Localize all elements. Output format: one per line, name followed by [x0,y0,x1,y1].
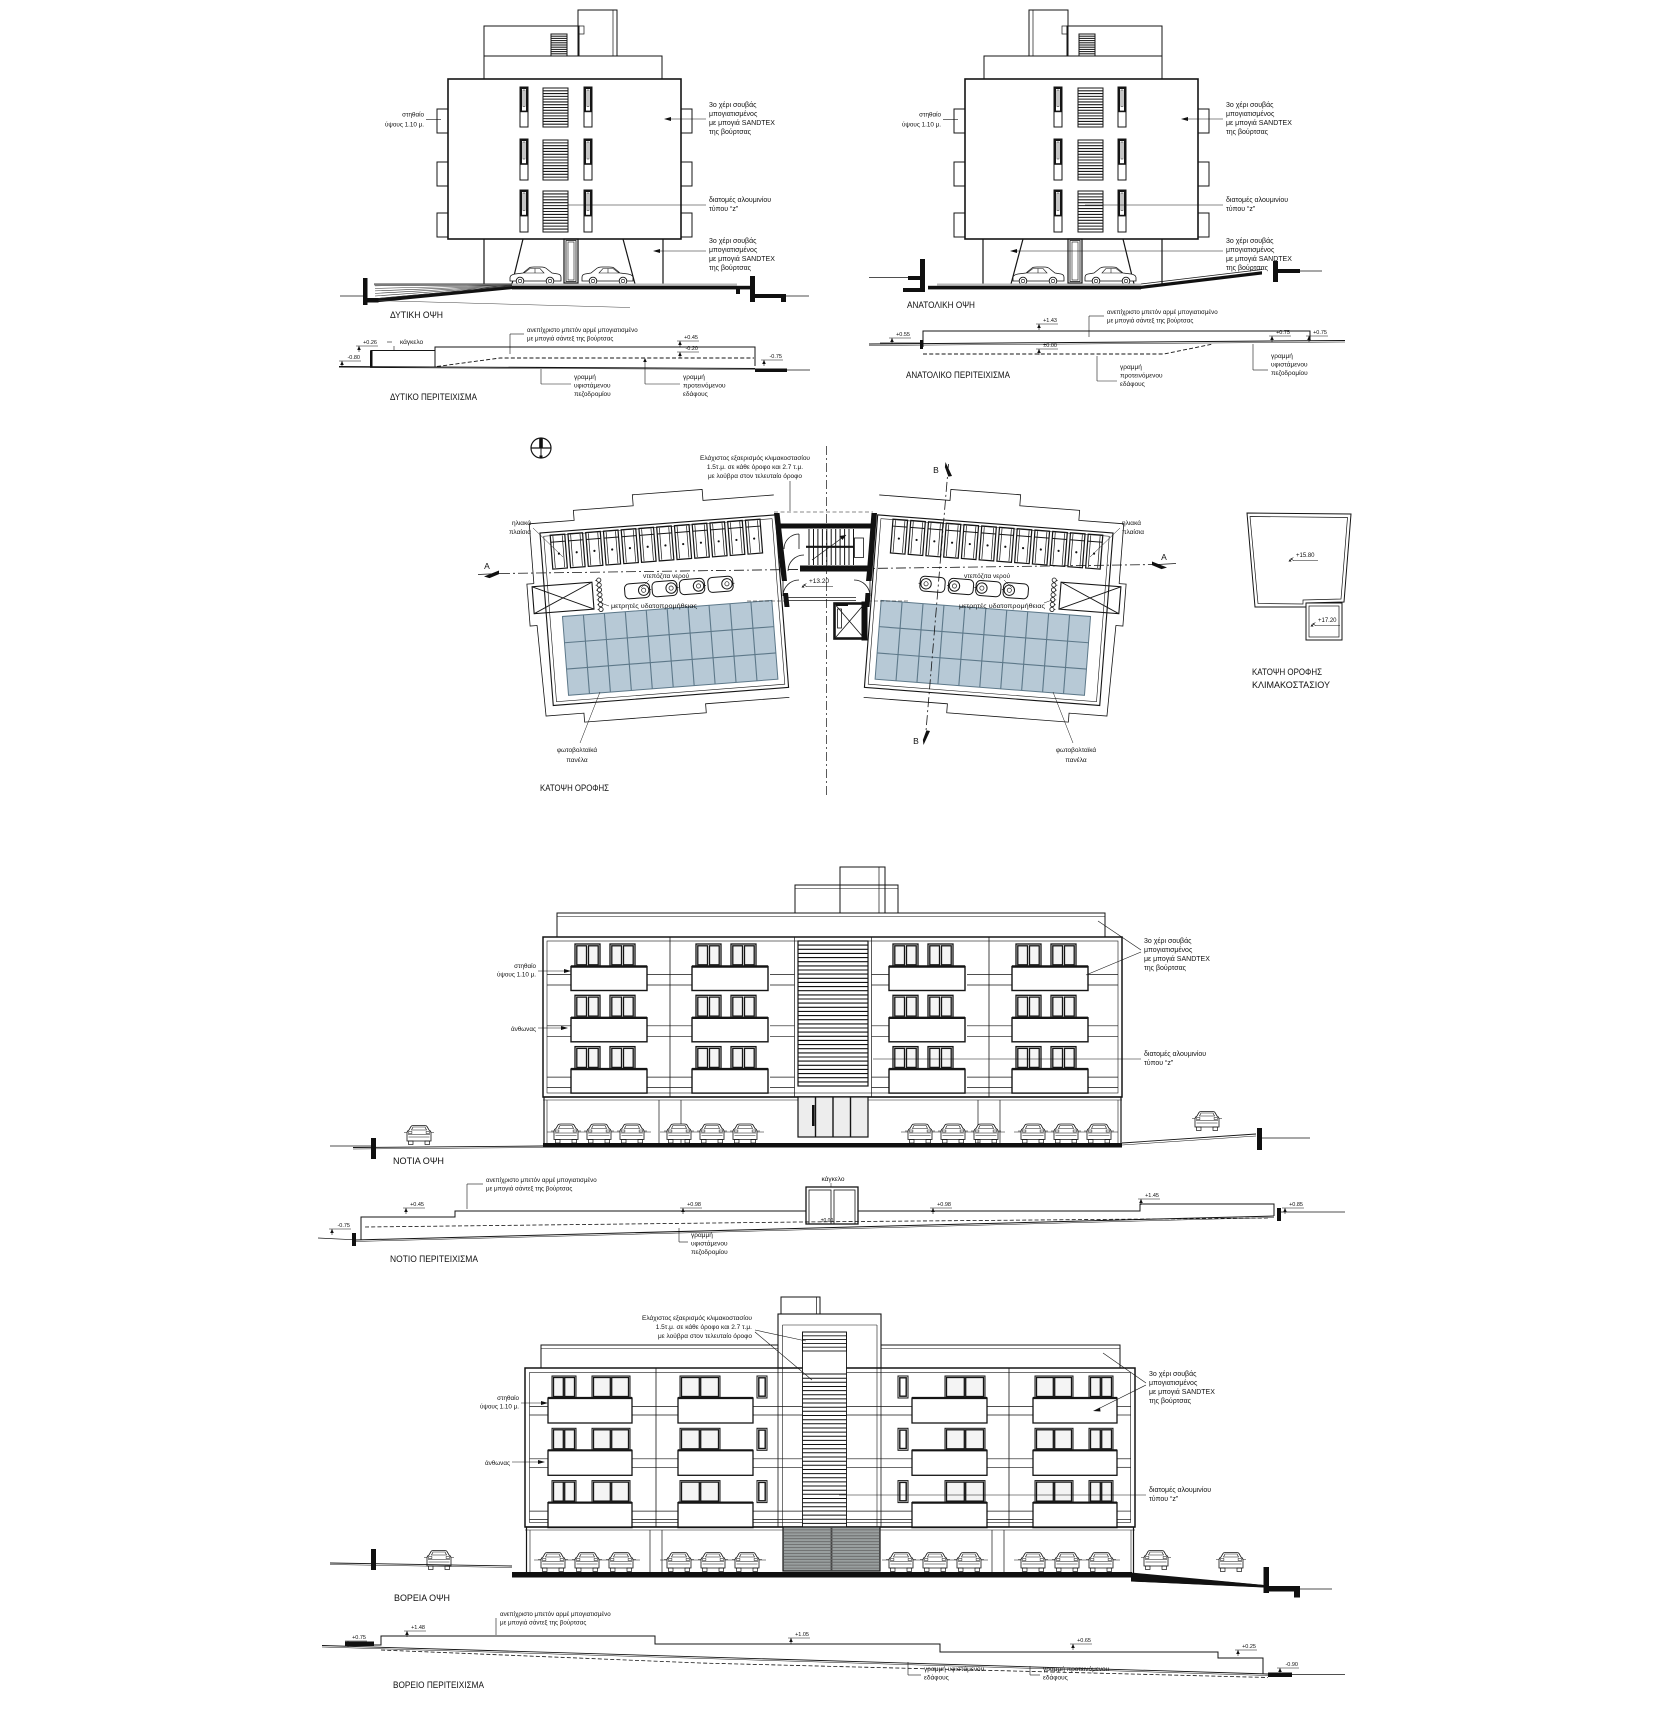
svg-text:+0.25: +0.25 [1242,1644,1256,1650]
svg-text:της βούρτσας: της βούρτσας [709,264,752,272]
svg-text:φωτοβολταϊκά: φωτοβολταϊκά [1056,746,1097,754]
svg-text:ύψους 1.10 μ.: ύψους 1.10 μ. [480,1403,519,1411]
svg-text:γραμμή: γραμμή [1120,364,1142,371]
svg-text:+1.43: +1.43 [1043,318,1057,324]
svg-text:με μπογιά SANDTEX: με μπογιά SANDTEX [709,255,775,263]
svg-text:άνθωνας: άνθωνας [485,1459,510,1467]
svg-text:της βούρτσας: της βούρτσας [1144,964,1187,972]
svg-text:της βούρτσας: της βούρτσας [1226,264,1269,272]
svg-text:με λούβρα στον τελευταίο όροφο: με λούβρα στον τελευταίο όροφο [708,472,802,480]
svg-text:με μπογιά SANDTEX: με μπογιά SANDTEX [709,119,775,127]
svg-text:πεζοδρομίου: πεζοδρομίου [691,1248,728,1256]
svg-text:πεζοδρομίου: πεζοδρομίου [574,390,611,398]
svg-text:κάγκελο: κάγκελο [400,338,423,346]
svg-text:ΚΑΤΟΨΗ ΟΡΟΦΗΣ: ΚΑΤΟΨΗ ΟΡΟΦΗΣ [540,783,609,793]
svg-text:+1.48: +1.48 [411,1625,425,1631]
svg-text:A: A [484,561,490,571]
svg-text:ΔΥΤΙΚΗ ΟΨΗ: ΔΥΤΙΚΗ ΟΨΗ [390,310,443,320]
svg-text:της βούρτσας: της βούρτσας [709,128,752,136]
svg-text:με μπογιά SANDTEX: με μπογιά SANDTEX [1226,255,1292,263]
svg-text:ανεπίχριστο μπετόν αρμέ μπογια: ανεπίχριστο μπετόν αρμέ μπογιατισμένο [500,1611,611,1618]
svg-text:γραμμή: γραμμή [683,374,705,381]
svg-text:μπογιατισμένος: μπογιατισμένος [709,110,758,118]
svg-text:διατομές αλουμινίου: διατομές αλουμινίου [1149,1486,1211,1494]
svg-text:εδάφους: εδάφους [1043,1674,1068,1682]
svg-text:ΑΝΑΤΟΛΙΚΗ ΟΨΗ: ΑΝΑΤΟΛΙΚΗ ΟΨΗ [907,300,975,310]
svg-text:3ο χέρι σουβάς: 3ο χέρι σουβάς [709,237,757,245]
svg-text:ανεπίχριστο μπετόν αρμέ μπογια: ανεπίχριστο μπετόν αρμέ μπογιατισμένο [1107,309,1218,316]
svg-text:γραμμή: γραμμή [691,1232,713,1239]
svg-text:της βούρτσας: της βούρτσας [1149,1397,1192,1405]
svg-text:3ο χέρι σουβάς: 3ο χέρι σουβάς [709,101,757,109]
svg-text:πανέλα: πανέλα [566,756,587,764]
svg-text:της βούρτσας: της βούρτσας [1226,128,1269,136]
svg-text:με λούβρα στον τελευταίο όροφο: με λούβρα στον τελευταίο όροφο [658,1332,752,1340]
svg-text:υφιστάμενου: υφιστάμενου [691,1240,728,1248]
svg-text:με μπογιά SANDTEX: με μπογιά SANDTEX [1149,1388,1215,1396]
svg-text:+0.85: +0.85 [1289,1202,1303,1208]
svg-text:3ο χέρι σουβάς: 3ο χέρι σουβάς [1226,237,1274,245]
svg-text:με μπογιά SANDTEX: με μπογιά SANDTEX [1226,119,1292,127]
svg-text:A: A [1161,552,1167,562]
svg-text:με μπογιά σάντεξ της βούρτσας: με μπογιά σάντεξ της βούρτσας [527,336,613,343]
svg-text:±0.00: ±0.00 [821,1218,834,1224]
svg-text:μπογιατισμένος: μπογιατισμένος [709,246,758,254]
svg-text:με μπογιά SANDTEX: με μπογιά SANDTEX [1144,955,1210,963]
svg-text:μπογιατισμένος: μπογιατισμένος [1144,946,1193,954]
svg-text:+0.98: +0.98 [687,1202,701,1208]
svg-text:γραμμή: γραμμή [1271,353,1293,360]
svg-text:±0.00: ±0.00 [1043,343,1057,349]
svg-text:κάγκελο: κάγκελο [821,1175,844,1183]
svg-text:-0.20: -0.20 [685,346,698,352]
svg-text:ΚΛΙΜΑΚΟΣΤΑΣΙΟΥ: ΚΛΙΜΑΚΟΣΤΑΣΙΟΥ [1252,680,1330,690]
svg-text:Ελάχιστος εξαερισμός κλιμακοστ: Ελάχιστος εξαερισμός κλιμακοστασίου [642,1314,752,1322]
svg-text:+0.75: +0.75 [352,1635,366,1641]
svg-text:Ελάχιστος εξαερισμός κλιμακοστ: Ελάχιστος εξαερισμός κλιμακοστασίου [700,454,810,462]
svg-text:+1.05: +1.05 [795,1632,809,1638]
svg-text:μπογιατισμένος: μπογιατισμένος [1226,110,1275,118]
svg-text:+0.75: +0.75 [1276,330,1290,336]
svg-text:ΑΝΑΤΟΛΙΚΟ ΠΕΡΙΤΕΙΧΙΣΜΑ: ΑΝΑΤΟΛΙΚΟ ΠΕΡΙΤΕΙΧΙΣΜΑ [906,370,1011,380]
svg-text:+17.20: +17.20 [1318,618,1337,624]
svg-text:+1.45: +1.45 [1145,1193,1159,1199]
svg-text:1.5τ.μ. σε κάθε όροφο και 2.7: 1.5τ.μ. σε κάθε όροφο και 2.7 τ.μ. [656,1323,752,1331]
svg-text:-0.90: -0.90 [1285,1662,1298,1668]
svg-text:+0.45: +0.45 [684,335,698,341]
svg-text:B: B [933,465,939,475]
svg-text:προτεινόμενου: προτεινόμενου [1120,372,1163,380]
svg-text:με μπογιά σάντεξ της βούρτσας: με μπογιά σάντεξ της βούρτσας [500,1620,586,1627]
svg-text:πλαίσια: πλαίσια [1122,528,1144,536]
svg-text:πανέλα: πανέλα [1065,756,1086,764]
svg-text:πεζοδρομίου: πεζοδρομίου [1271,369,1308,377]
svg-text:ΔΥΤΙΚΟ ΠΕΡΙΤΕΙΧΙΣΜΑ: ΔΥΤΙΚΟ ΠΕΡΙΤΕΙΧΙΣΜΑ [390,392,478,402]
svg-text:+0.26: +0.26 [363,340,377,346]
svg-text:στηθαίο: στηθαίο [514,962,536,970]
svg-text:ΝΟΤΙΑ ΟΨΗ: ΝΟΤΙΑ ΟΨΗ [393,1156,444,1166]
svg-text:μπογιατισμένος: μπογιατισμένος [1149,1379,1198,1387]
svg-text:ντεπόζιτα νερού: ντεπόζιτα νερού [643,572,690,580]
svg-text:-0.75: -0.75 [337,1223,350,1229]
svg-text:γραμμή υφιστάμενου: γραμμή υφιστάμενου [924,1665,985,1673]
svg-text:μετρητές υδατοπρομήθειας: μετρητές υδατοπρομήθειας [611,602,697,610]
svg-text:B: B [913,736,919,746]
svg-text:υφιστάμενου: υφιστάμενου [1271,361,1308,369]
svg-text:ηλιακά: ηλιακά [512,519,531,527]
svg-text:+0.45: +0.45 [410,1202,424,1208]
svg-text:με μπογιά σάντεξ της βούρτσας: με μπογιά σάντεξ της βούρτσας [1107,318,1193,325]
svg-text:+0.55: +0.55 [896,332,910,338]
svg-text:ανεπίχριστο μπετόν αρμέ μπογια: ανεπίχριστο μπετόν αρμέ μπογιατισμένο [486,1177,597,1184]
svg-text:τύπου “z”: τύπου “z” [1149,1495,1179,1503]
svg-text:διατομές αλουμινίου: διατομές αλουμινίου [1144,1050,1206,1058]
svg-text:στηθαίο: στηθαίο [919,111,941,119]
svg-text:ανεπίχριστο μπετόν αρμέ μπογια: ανεπίχριστο μπετόν αρμέ μπογιατισμένο [527,327,638,334]
svg-text:στηθαίο: στηθαίο [402,111,424,119]
svg-text:ΒΟΡΕΙΑ ΟΨΗ: ΒΟΡΕΙΑ ΟΨΗ [394,1593,450,1603]
svg-text:3ο χέρι σουβάς: 3ο χέρι σουβάς [1149,1370,1197,1378]
svg-text:μπογιατισμένος: μπογιατισμένος [1226,246,1275,254]
svg-text:προτεινόμενου: προτεινόμενου [683,382,726,390]
svg-text:εδάφους: εδάφους [683,390,708,398]
svg-text:μετρητές υδατοπρομήθειας: μετρητές υδατοπρομήθειας [959,602,1045,610]
svg-text:γραμμή: γραμμή [574,374,596,381]
svg-text:με μπογιά σάντεξ της βούρτσας: με μπογιά σάντεξ της βούρτσας [486,1186,572,1193]
svg-text:ύψους 1.10 μ.: ύψους 1.10 μ. [385,121,424,129]
svg-text:στηθαίο: στηθαίο [497,1394,519,1402]
svg-text:ΒΟΡΕΙΟ ΠΕΡΙΤΕΙΧΙΣΜΑ: ΒΟΡΕΙΟ ΠΕΡΙΤΕΙΧΙΣΜΑ [393,1680,485,1690]
svg-text:πλαίσια: πλαίσια [509,528,531,536]
svg-text:3ο χέρι σουβάς: 3ο χέρι σουβάς [1226,101,1274,109]
svg-text:διατομές αλουμινίου: διατομές αλουμινίου [709,196,771,204]
svg-text:εδάφους: εδάφους [1120,380,1145,388]
svg-text:ύψους 1.10 μ.: ύψους 1.10 μ. [497,971,536,979]
svg-text:3ο χέρι σουβάς: 3ο χέρι σουβάς [1144,937,1192,945]
svg-text:ΚΑΤΟΨΗ ΟΡΟΦΗΣ: ΚΑΤΟΨΗ ΟΡΟΦΗΣ [1252,667,1322,677]
svg-text:υφιστάμενου: υφιστάμενου [574,382,611,390]
svg-text:-0.80: -0.80 [347,355,360,361]
svg-text:διατομές αλουμινίου: διατομές αλουμινίου [1226,196,1288,204]
svg-text:εδάφους: εδάφους [924,1674,949,1682]
svg-text:+0.75: +0.75 [1313,330,1327,336]
svg-text:-0.75: -0.75 [769,354,782,360]
svg-text:φωτοβολταϊκά: φωτοβολταϊκά [557,746,598,754]
svg-text:ντεπόζιτα νερού: ντεπόζιτα νερού [964,572,1011,580]
svg-text:τύπου “z”: τύπου “z” [1226,205,1256,213]
svg-text:άνθωνας: άνθωνας [511,1025,536,1033]
svg-text:γραμμή προτεινόμενου: γραμμή προτεινόμενου [1043,1665,1110,1673]
svg-text:τύπου “z”: τύπου “z” [709,205,739,213]
svg-text:ύψους 1.10 μ.: ύψους 1.10 μ. [902,121,941,129]
svg-text:1.5τ.μ. σε κάθε όροφο και 2.7: 1.5τ.μ. σε κάθε όροφο και 2.7 τ.μ. [707,463,803,471]
svg-text:+0.65: +0.65 [1077,1638,1091,1644]
svg-text:ΝΟΤΙΟ ΠΕΡΙΤΕΙΧΙΣΜΑ: ΝΟΤΙΟ ΠΕΡΙΤΕΙΧΙΣΜΑ [390,1254,479,1264]
svg-text:ηλιακά: ηλιακά [1122,519,1141,527]
svg-text:τύπου “z”: τύπου “z” [1144,1059,1174,1067]
svg-text:+0.98: +0.98 [937,1202,951,1208]
svg-text:+15.80: +15.80 [1296,553,1315,559]
